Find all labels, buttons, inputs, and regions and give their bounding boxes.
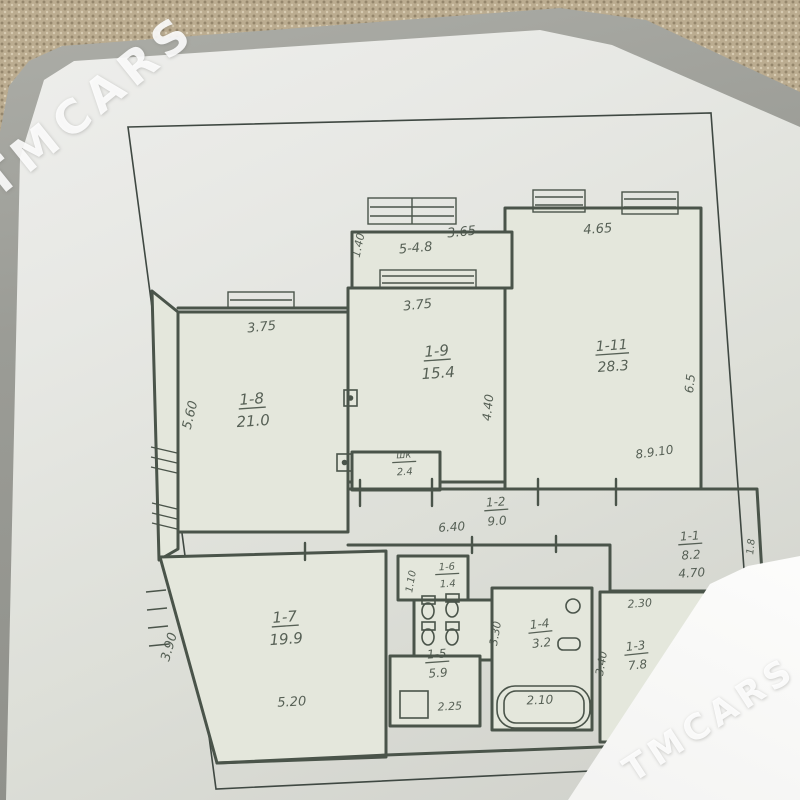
room-1-7 <box>160 551 386 763</box>
room-label: 5-4.8 <box>398 240 433 258</box>
room-label: 1-4 <box>529 616 550 632</box>
room-area: 9.0 <box>487 513 507 528</box>
room-annotation: 1-18.2 <box>677 528 703 563</box>
dimension-text: 3.65 <box>446 224 476 242</box>
room-area: 21.0 <box>236 411 271 431</box>
dimension-text: 4.70 <box>678 565 706 581</box>
dimension-text: 6.40 <box>438 519 466 535</box>
room-area: 5.9 <box>428 665 448 680</box>
dimension-text: 2.25 <box>437 699 462 713</box>
room-label: 1-6 <box>438 562 455 574</box>
dimension-text: 3.75 <box>402 297 432 315</box>
room-label: 1-3 <box>625 638 646 654</box>
room-label: 1-5 <box>426 646 447 661</box>
room-1-4 <box>492 588 592 730</box>
room-label: 1-9 <box>424 341 450 361</box>
dimension-text: 4.40 <box>480 393 497 421</box>
room-label: шк <box>396 450 412 462</box>
room-label: 1-2 <box>485 494 506 509</box>
room-area: 28.3 <box>597 358 629 376</box>
room-label: 1-1 <box>679 528 700 543</box>
room-area: 2.4 <box>397 467 413 479</box>
room-area: 8.2 <box>681 547 701 562</box>
balcony-top <box>352 232 512 288</box>
room-area: 7.8 <box>627 657 648 673</box>
balcony-left <box>152 291 178 560</box>
dimension-text: 3.90 <box>158 631 180 663</box>
dimension-text: 5.20 <box>277 694 307 710</box>
room-label: 1-7 <box>272 607 298 627</box>
room-annotation: 5-4.8 <box>398 240 433 258</box>
room-area: 3.2 <box>531 635 551 651</box>
room-area: 15.4 <box>421 363 456 383</box>
room-label: 1-8 <box>239 389 265 409</box>
dimension-text: 3.75 <box>246 319 276 337</box>
dimension-text: 2.10 <box>526 693 554 708</box>
dimension-text: 6.5 <box>682 373 698 393</box>
photo-scene: 1-821.01-915.41-1128.31-719.91-29.01-18.… <box>0 0 800 800</box>
room-area: 19.9 <box>269 629 304 649</box>
dimension-text: 2.30 <box>627 596 652 611</box>
dimension-text: 4.65 <box>583 221 613 238</box>
room-label: 1-11 <box>595 337 628 355</box>
room-annotation: 1-29.0 <box>483 494 509 529</box>
room-area: 1.4 <box>440 579 456 591</box>
dimension-text: 1.8 <box>745 538 758 555</box>
